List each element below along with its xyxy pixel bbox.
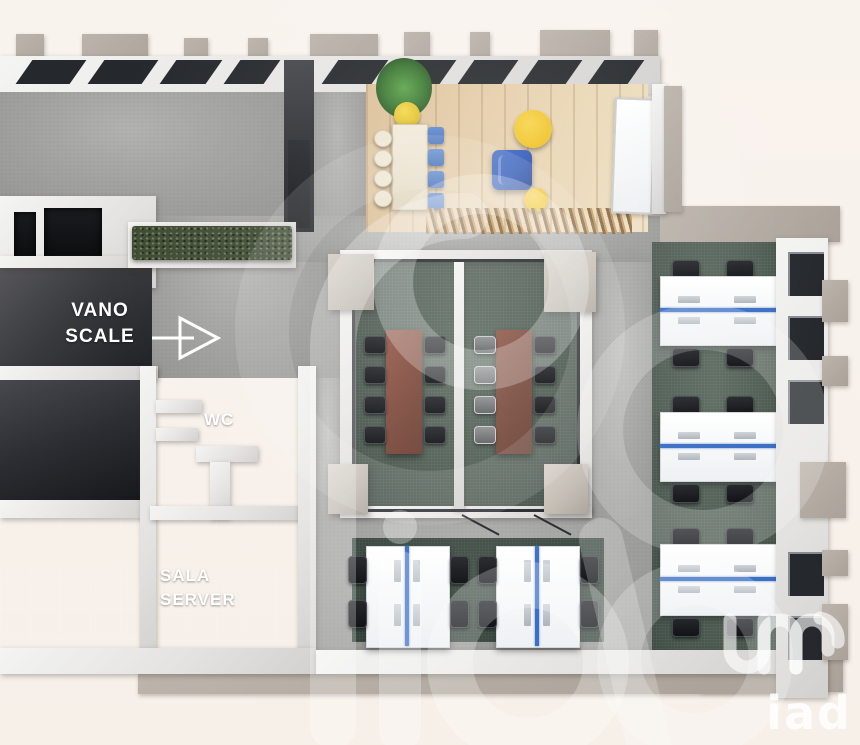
meeting-chair	[364, 366, 386, 384]
wall	[0, 648, 316, 674]
pouf-yellow-large	[514, 110, 552, 148]
desk-chair	[348, 556, 367, 584]
lounge-chair	[374, 130, 392, 147]
meeting-chair	[424, 396, 446, 414]
desk-divider	[660, 444, 778, 448]
corner-pillar	[544, 464, 588, 514]
monitor	[543, 604, 550, 626]
facade-window	[788, 252, 824, 296]
wall	[0, 500, 148, 518]
entrance-arrow-icon	[150, 310, 224, 366]
meeting-chair	[534, 336, 556, 354]
meeting-chair	[474, 426, 496, 444]
lounge-chair	[374, 170, 392, 187]
monitor	[734, 317, 756, 324]
monitor	[734, 432, 756, 439]
meeting-chair	[424, 366, 446, 384]
desk-chair	[450, 556, 469, 584]
desk-chair	[672, 348, 700, 367]
floor-plan-canvas: VANO SCALE WC SALA SERVER	[0, 0, 860, 745]
meeting-table	[496, 330, 532, 454]
corridor-floor-lounge-left	[314, 92, 366, 232]
meeting-chair	[424, 336, 446, 354]
facade-pillar	[822, 550, 848, 576]
lounge-table	[392, 124, 428, 210]
room-label-sala-server: SALA SERVER	[160, 564, 290, 612]
desk-divider	[405, 546, 409, 646]
facade-window	[788, 380, 824, 424]
lounge-chair-blue	[428, 149, 444, 166]
room-left-storage2-floor	[0, 518, 140, 650]
meeting-chair	[474, 396, 496, 414]
corner-pillar	[328, 254, 374, 310]
monitor	[678, 432, 700, 439]
outer-wall-bottom	[138, 672, 788, 694]
iad-logo-text: iad	[748, 686, 852, 740]
room-label-wc: WC	[204, 410, 234, 430]
desk-divider	[660, 308, 778, 312]
room-label-line: SERVER	[160, 588, 290, 612]
desk-chair	[478, 600, 497, 628]
monitor	[678, 453, 700, 460]
facade-pillar	[822, 356, 848, 386]
monitor	[678, 317, 700, 324]
iad-logo-glyph	[716, 604, 852, 686]
meeting-mullion	[454, 262, 464, 510]
desk-chair	[348, 600, 367, 628]
monitor	[734, 586, 756, 593]
armchair-cushion	[498, 155, 529, 185]
meeting-table	[386, 330, 422, 454]
hedge	[132, 226, 292, 260]
facade-pillar	[822, 280, 848, 322]
desk-chair	[450, 600, 469, 628]
monitor	[524, 604, 531, 626]
desk-chair	[726, 484, 754, 503]
desk-chair	[580, 600, 599, 628]
room-left-storage-floor	[0, 380, 140, 502]
facade-window	[788, 552, 824, 596]
desk-divider	[535, 546, 539, 646]
lounge-chair-blue	[428, 171, 444, 188]
desk-chair	[672, 484, 700, 503]
monitor	[678, 296, 700, 303]
meeting-chair	[534, 426, 556, 444]
monitor	[734, 453, 756, 460]
lounge-chair	[374, 190, 392, 207]
armchair-blue	[492, 150, 532, 190]
wall	[0, 366, 158, 380]
corridor-floor-right	[592, 262, 658, 552]
monitor	[734, 565, 756, 572]
meeting-chair	[474, 366, 496, 384]
whiteboard	[611, 97, 656, 214]
meeting-chair	[364, 396, 386, 414]
lounge-right-outer-wall	[664, 86, 682, 212]
desk-chair	[672, 618, 700, 637]
monitor	[543, 560, 550, 582]
monitor	[394, 604, 401, 626]
room-label-vano-scale: VANO SCALE	[40, 298, 160, 350]
monitor	[413, 560, 420, 582]
monitor	[524, 560, 531, 582]
wc-partition	[156, 400, 202, 413]
room-label-line: VANO	[40, 298, 160, 324]
meeting-chair	[364, 336, 386, 354]
meeting-chair	[424, 426, 446, 444]
lounge-chair-blue	[428, 127, 444, 144]
wc-partition	[196, 446, 258, 462]
ac-unit	[288, 140, 310, 228]
facade-window	[788, 316, 824, 360]
monitor	[413, 604, 420, 626]
corner-pillar	[328, 464, 368, 514]
potted-plant	[372, 58, 436, 134]
meeting-chair	[364, 426, 386, 444]
room-label-line: SALA	[160, 564, 290, 588]
facade-pillar	[800, 462, 846, 518]
monitor	[394, 560, 401, 582]
slat-bench	[426, 208, 632, 234]
meeting-chair	[534, 396, 556, 414]
meeting-chair	[474, 336, 496, 354]
desk-chair	[726, 348, 754, 367]
monitor	[678, 565, 700, 572]
room-label-line: SCALE	[40, 324, 160, 350]
desk-divider	[660, 577, 778, 581]
desk-chair	[580, 556, 599, 584]
meeting-chair	[534, 366, 556, 384]
wall	[150, 506, 310, 520]
wall	[298, 366, 316, 664]
corner-pillar	[544, 252, 596, 312]
monitor	[734, 296, 756, 303]
lounge-chair	[374, 150, 392, 167]
wc-partition	[156, 428, 198, 441]
desk-chair	[478, 556, 497, 584]
monitor	[678, 586, 700, 593]
